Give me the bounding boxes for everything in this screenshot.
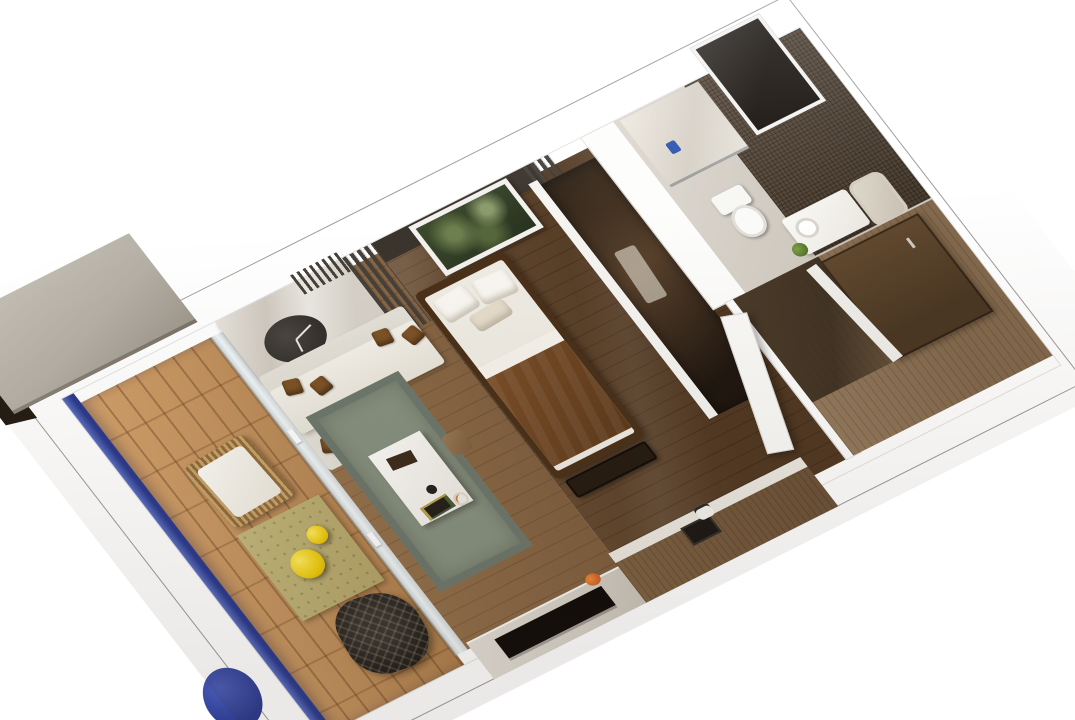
wardrobe-handle — [906, 238, 916, 249]
floor-plan-render — [62, 28, 1060, 720]
apartment-render-canvas: Photorealistic 3D axonometric cutaway re… — [0, 0, 1075, 720]
